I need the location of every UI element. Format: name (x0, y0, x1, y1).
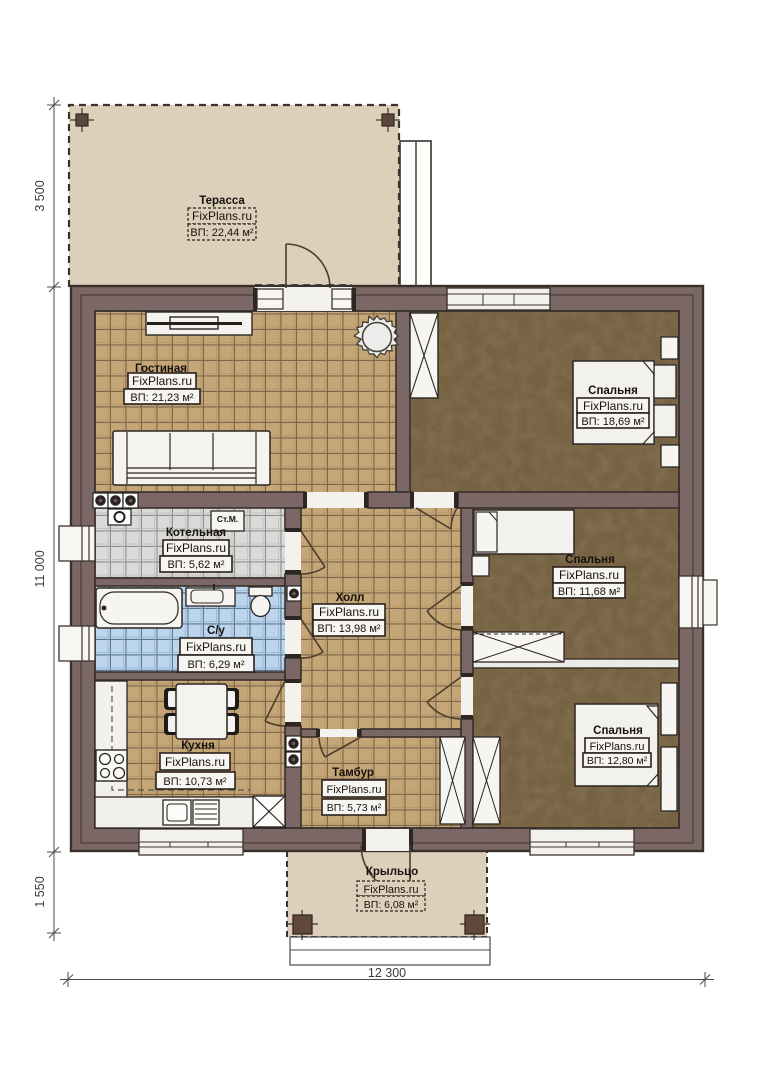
svg-text:Спальня: Спальня (593, 725, 643, 737)
svg-text:ВП: 13,98 м²: ВП: 13,98 м² (317, 623, 381, 635)
svg-text:FixPlans.ru: FixPlans.ru (192, 209, 252, 223)
svg-text:FixPlans.ru: FixPlans.ru (589, 741, 644, 753)
svg-text:ВП: 10,73 м²: ВП: 10,73 м² (163, 776, 227, 788)
svg-text:ВП: 6,29 м²: ВП: 6,29 м² (187, 659, 244, 671)
svg-text:Кухня: Кухня (181, 740, 215, 752)
svg-text:12 300: 12 300 (368, 966, 406, 980)
svg-text:С/у: С/у (207, 625, 226, 637)
svg-text:1 550: 1 550 (33, 876, 47, 907)
svg-text:Тамбур: Тамбур (332, 767, 374, 779)
svg-text:Холл: Холл (336, 592, 365, 604)
svg-text:ВП: 5,73 м²: ВП: 5,73 м² (327, 802, 382, 814)
svg-text:FixPlans.ru: FixPlans.ru (363, 884, 418, 896)
svg-text:Спальня: Спальня (588, 385, 638, 397)
svg-text:FixPlans.ru: FixPlans.ru (319, 605, 379, 619)
svg-text:ВП: 18,69 м²: ВП: 18,69 м² (581, 416, 645, 428)
svg-text:ВП: 22,44 м²: ВП: 22,44 м² (190, 227, 254, 239)
svg-text:ВП: 21,23 м²: ВП: 21,23 м² (130, 392, 194, 404)
svg-text:Терасса: Терасса (199, 195, 245, 207)
svg-text:Котельная: Котельная (166, 527, 226, 539)
svg-text:11 000: 11 000 (33, 550, 47, 587)
svg-text:FixPlans.ru: FixPlans.ru (583, 399, 643, 413)
svg-text:ВП: 6,08 м²: ВП: 6,08 м² (364, 899, 419, 911)
svg-text:Крыльцо: Крыльцо (366, 866, 418, 878)
svg-text:3 500: 3 500 (33, 180, 47, 211)
svg-text:FixPlans.ru: FixPlans.ru (559, 568, 619, 582)
svg-text:FixPlans.ru: FixPlans.ru (186, 640, 246, 654)
svg-text:ВП: 5,62 м²: ВП: 5,62 м² (167, 559, 224, 571)
svg-text:ВП: 11,68 м²: ВП: 11,68 м² (558, 586, 621, 598)
svg-text:FixPlans.ru: FixPlans.ru (166, 541, 226, 555)
svg-text:Ст.М.: Ст.М. (217, 514, 238, 524)
svg-text:FixPlans.ru: FixPlans.ru (326, 784, 381, 796)
svg-text:FixPlans.ru: FixPlans.ru (132, 374, 192, 388)
svg-text:ВП: 12,80 м²: ВП: 12,80 м² (587, 755, 648, 767)
svg-text:FixPlans.ru: FixPlans.ru (165, 755, 225, 769)
svg-text:Спальня: Спальня (565, 554, 615, 566)
